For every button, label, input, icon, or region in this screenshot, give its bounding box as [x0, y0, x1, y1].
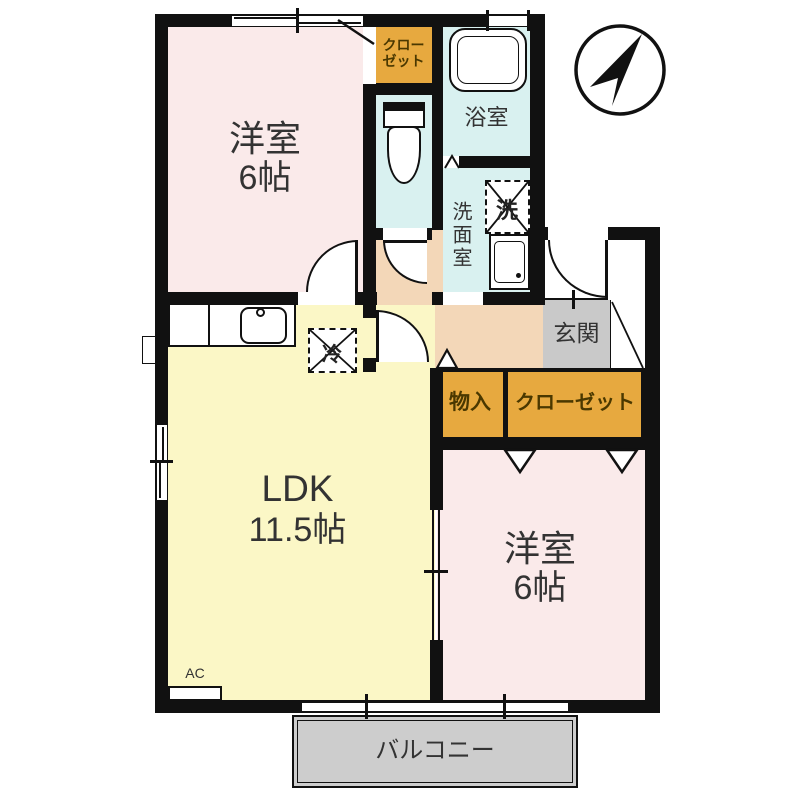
wall: [155, 14, 168, 713]
window-line: [487, 14, 530, 16]
window-line: [302, 700, 568, 703]
sliding-door-line: [432, 510, 434, 640]
wall: [432, 14, 443, 230]
window-tick: [150, 460, 173, 463]
entry-threshold-line: [543, 298, 608, 300]
room-size: 6帖: [445, 569, 635, 608]
label-ldk: LDK 11.5帖: [170, 468, 425, 550]
compass-icon: [576, 26, 664, 114]
wall: [430, 437, 655, 450]
kitchen-counter-divider: [208, 303, 210, 347]
wall: [530, 240, 545, 305]
washer-kanji: 洗: [496, 193, 518, 225]
closet-top-line2: ゼット: [375, 53, 432, 69]
doorway-washroom: [443, 292, 483, 305]
floor-plan: 洋室 6帖 クロー ゼット 浴室 洗面室 玄関 物入 クローゼット LDK 11…: [0, 0, 800, 800]
label-closet-br: クローゼット: [508, 392, 642, 415]
closet-strip-top-line: [430, 368, 655, 372]
doorway-toilet: [383, 228, 427, 240]
label-storage: 物入: [437, 391, 503, 415]
room-size: 6帖: [170, 159, 360, 198]
wall: [363, 358, 376, 372]
window-line: [487, 26, 530, 28]
closet-top-line1: クロー: [375, 37, 432, 53]
window-tick: [486, 10, 489, 31]
shoe-cabinet: [610, 300, 645, 372]
vanity-drain-dot: [516, 273, 521, 278]
label-entrance: 玄関: [543, 320, 610, 346]
label-bedroom-br: 洋室 6帖: [445, 528, 635, 608]
room-name: 洋室: [445, 528, 635, 569]
window-line: [302, 711, 568, 714]
label-closet-top: クロー ゼット: [375, 37, 432, 69]
fridge-kanji: 冷: [322, 338, 342, 367]
window-tick: [527, 10, 530, 31]
window-tick: [365, 694, 368, 719]
bathtub-inner-line: [457, 36, 519, 84]
room-name: 洋室: [170, 118, 360, 159]
wall: [363, 305, 376, 318]
window-sash: [159, 462, 161, 498]
doorway-bedroom-tl: [298, 292, 355, 305]
entry-threshold-tick: [572, 290, 575, 309]
room-name: LDK: [170, 468, 425, 511]
window-sash: [234, 17, 298, 19]
toilet-lid-bar: [383, 102, 425, 111]
window-sash: [162, 427, 164, 462]
wall: [155, 700, 302, 713]
window-sash: [297, 22, 361, 24]
label-balcony: バルコニー: [292, 737, 578, 765]
doorway-bath: [443, 156, 459, 168]
room-size: 11.5帖: [170, 511, 425, 550]
window-tick: [296, 8, 299, 33]
label-bedroom-tl: 洋室 6帖: [170, 118, 360, 198]
wall: [375, 83, 432, 95]
door-arc-entry: [548, 240, 608, 298]
ac-unit: [168, 686, 222, 701]
window-tick: [503, 694, 506, 719]
kitchen-faucet-icon: [256, 308, 265, 317]
wall: [645, 227, 660, 713]
label-ac: AC: [168, 665, 222, 681]
wall: [530, 14, 545, 240]
sliding-door-line: [438, 510, 440, 640]
label-bath: 浴室: [443, 105, 530, 130]
doorway-entrance: [548, 227, 608, 240]
label-washroom: 洗面室: [445, 178, 471, 293]
